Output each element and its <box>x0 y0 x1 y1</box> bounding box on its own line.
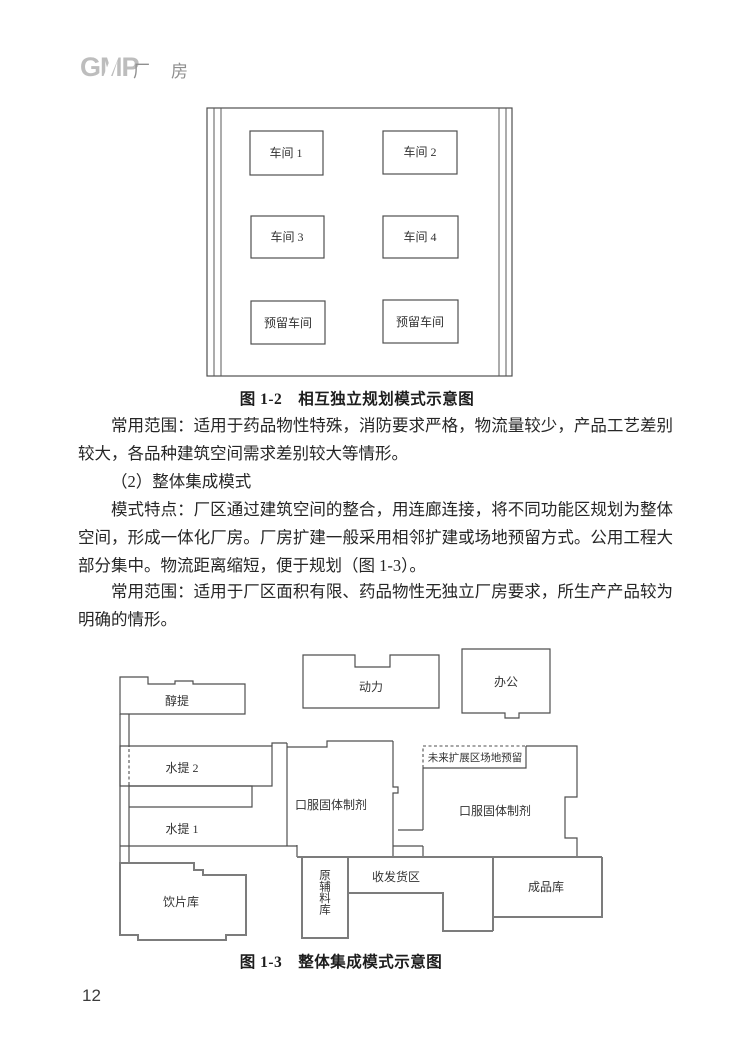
water-extraction-1-label: 水提 1 <box>165 821 198 836</box>
workshop-1-label: 车间 1 <box>269 145 302 160</box>
figure-1-3-diagram: 醇提 动力 办公 水提 2 水提 1 口服固体制剂 <box>110 640 610 945</box>
oral-solid-left-label: 口服固体制剂 <box>295 797 367 812</box>
oral-solid-right-label: 口服固体制剂 <box>459 803 531 818</box>
finished-goods-warehouse-label: 成品库 <box>528 879 564 894</box>
water-extraction-2-building: 水提 2 <box>120 743 287 807</box>
corridor-spine <box>120 714 129 863</box>
water-extraction-1-building: 水提 1 <box>120 821 297 846</box>
decoction-pieces-warehouse-building: 饮片库 <box>120 863 246 940</box>
workshop-3-box: 车间 3 <box>251 216 324 258</box>
page-number: 12 <box>82 986 101 1006</box>
heading-integrated-mode: （2）整体集成模式 <box>78 468 673 496</box>
reserved-workshop-left-box: 预留车间 <box>251 301 325 344</box>
workshop-1-box: 车间 1 <box>250 131 323 175</box>
shipping-receiving-area: 收发货区 <box>348 869 493 931</box>
figure-1-3-caption: 图 1-3 整体集成模式示意图 <box>41 950 641 972</box>
workshop-4-label: 车间 4 <box>403 229 436 244</box>
office-label: 办公 <box>494 674 518 689</box>
page-header: GMP 厂 房 <box>80 52 139 86</box>
book-page: GMP 厂 房 车间 1 车间 2 车间 3 车间 4 <box>0 0 750 1059</box>
reserved-workshop-right-label: 预留车间 <box>396 314 444 329</box>
site-boundary <box>207 108 512 376</box>
future-expansion-label: 未来扩展区场地预留 <box>428 751 523 764</box>
raw-materials-warehouse-building: 原辅料库 <box>302 857 348 938</box>
workshop-4-box: 车间 4 <box>383 216 458 258</box>
reserved-workshop-right-box: 预留车间 <box>383 300 458 343</box>
paragraph-mode-features: 模式特点：厂区通过建筑空间的整合，用连廊连接，将不同功能区规划为整体空间，形成一… <box>78 496 673 580</box>
power-label: 动力 <box>359 680 383 694</box>
finished-goods-warehouse-building: 成品库 <box>493 857 602 931</box>
paragraph-common-scope-1: 常用范围：适用于药品物性特殊，消防要求严格，物流量较少，产品工艺差别较大，各品种… <box>78 412 673 468</box>
workshop-2-label: 车间 2 <box>403 144 436 159</box>
office-building: 办公 <box>462 649 550 718</box>
future-expansion-box: 未来扩展区场地预留 <box>423 746 526 768</box>
alcohol-extraction-label: 醇提 <box>165 693 189 708</box>
figure-1-2-caption: 图 1-2 相互独立规划模式示意图 <box>57 387 657 409</box>
oral-solid-left-building: 口服固体制剂 <box>287 741 398 857</box>
header-topic: 厂 房 <box>133 57 190 82</box>
water-extraction-2-label: 水提 2 <box>165 760 198 775</box>
alcohol-extraction-building: 醇提 <box>120 677 245 714</box>
power-building: 动力 <box>303 655 439 708</box>
gmp-logo: GMP <box>80 52 139 83</box>
reserved-workshop-left-label: 预留车间 <box>264 315 312 330</box>
workshop-2-box: 车间 2 <box>383 131 457 174</box>
workshop-3-label: 车间 3 <box>270 229 303 244</box>
figure-1-2-diagram: 车间 1 车间 2 车间 3 车间 4 预留车间 预留车间 <box>200 100 520 382</box>
raw-materials-warehouse-label: 原辅料库 <box>318 869 331 916</box>
paragraph-common-scope-2: 常用范围：适用于厂区面积有限、药品物性无独立厂房要求，所生产产品较为明确的情形。 <box>78 578 673 634</box>
decoction-pieces-warehouse-label: 饮片库 <box>163 894 199 909</box>
connecting-corridor <box>393 830 423 846</box>
shipping-receiving-label: 收发货区 <box>372 869 420 884</box>
